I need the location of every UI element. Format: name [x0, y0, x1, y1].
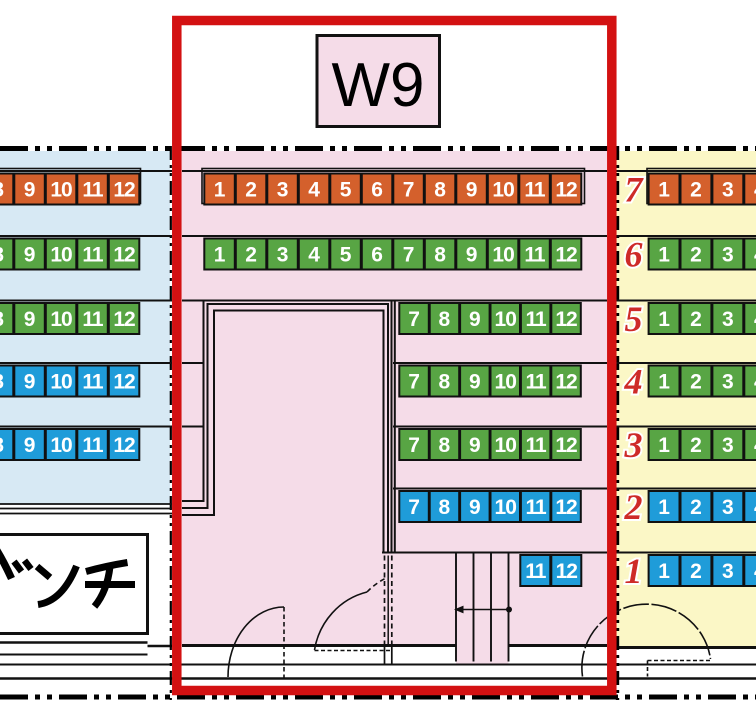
svg-text:12: 12 — [556, 560, 578, 583]
svg-text:11: 11 — [525, 371, 547, 394]
svg-text:11: 11 — [524, 244, 546, 267]
svg-text:12: 12 — [555, 244, 577, 267]
svg-text:6: 6 — [371, 244, 383, 267]
svg-text:8: 8 — [0, 308, 4, 331]
svg-text:3: 3 — [722, 371, 734, 394]
svg-text:12: 12 — [555, 371, 577, 394]
svg-text:12: 12 — [555, 179, 577, 202]
svg-text:1: 1 — [658, 434, 670, 457]
svg-text:1: 1 — [214, 179, 226, 202]
svg-text:3: 3 — [277, 179, 289, 202]
svg-text:7: 7 — [408, 496, 420, 519]
svg-text:11: 11 — [82, 434, 104, 457]
svg-text:8: 8 — [434, 179, 446, 202]
svg-text:10: 10 — [50, 179, 72, 202]
svg-text:3: 3 — [722, 244, 734, 267]
svg-text:10: 10 — [492, 179, 514, 202]
svg-text:10: 10 — [50, 308, 72, 331]
svg-text:2: 2 — [245, 179, 257, 202]
svg-text:9: 9 — [24, 371, 36, 394]
svg-text:11: 11 — [82, 244, 104, 267]
svg-text:3: 3 — [722, 434, 734, 457]
svg-text:2: 2 — [690, 434, 702, 457]
svg-text:1: 1 — [658, 560, 670, 583]
svg-text:11: 11 — [82, 179, 104, 202]
svg-text:2: 2 — [245, 244, 257, 267]
svg-text:10: 10 — [495, 434, 517, 457]
svg-text:9: 9 — [24, 244, 36, 267]
svg-text:8: 8 — [0, 179, 4, 202]
svg-text:7: 7 — [408, 371, 420, 394]
svg-text:6: 6 — [625, 235, 643, 275]
svg-text:9: 9 — [24, 434, 36, 457]
svg-text:10: 10 — [50, 434, 72, 457]
svg-text:5: 5 — [340, 179, 352, 202]
svg-text:9: 9 — [469, 308, 481, 331]
svg-text:9: 9 — [469, 496, 481, 519]
svg-text:5: 5 — [625, 299, 643, 339]
svg-text:8: 8 — [439, 371, 451, 394]
svg-text:4: 4 — [624, 362, 643, 402]
svg-text:10: 10 — [495, 308, 517, 331]
svg-text:1: 1 — [214, 244, 226, 267]
svg-text:9: 9 — [24, 308, 36, 331]
svg-text:1: 1 — [658, 371, 670, 394]
svg-text:11: 11 — [525, 560, 547, 583]
svg-text:11: 11 — [525, 496, 547, 519]
svg-text:9: 9 — [469, 371, 481, 394]
svg-text:8: 8 — [0, 434, 4, 457]
svg-text:11: 11 — [525, 308, 547, 331]
svg-text:8: 8 — [0, 371, 4, 394]
svg-text:12: 12 — [113, 308, 135, 331]
svg-text:9: 9 — [24, 179, 36, 202]
svg-text:10: 10 — [495, 496, 517, 519]
svg-text:9: 9 — [466, 179, 478, 202]
svg-text:12: 12 — [555, 308, 577, 331]
svg-text:2: 2 — [690, 308, 702, 331]
svg-text:2: 2 — [690, 371, 702, 394]
svg-text:2: 2 — [624, 487, 643, 527]
svg-text:2: 2 — [690, 560, 702, 583]
svg-text:8: 8 — [0, 244, 4, 267]
svg-text:2: 2 — [690, 179, 702, 202]
svg-text:12: 12 — [555, 496, 577, 519]
svg-text:3: 3 — [722, 560, 734, 583]
svg-text:11: 11 — [525, 434, 547, 457]
svg-text:1: 1 — [658, 179, 670, 202]
svg-text:11: 11 — [524, 179, 546, 202]
svg-text:5: 5 — [340, 244, 352, 267]
svg-text:3: 3 — [722, 308, 734, 331]
svg-text:3: 3 — [722, 496, 734, 519]
svg-text:12: 12 — [555, 434, 577, 457]
svg-text:8: 8 — [434, 244, 446, 267]
svg-text:10: 10 — [50, 244, 72, 267]
svg-text:7: 7 — [403, 244, 415, 267]
svg-text:2: 2 — [690, 244, 702, 267]
svg-text:12: 12 — [113, 244, 135, 267]
svg-text:6: 6 — [371, 179, 383, 202]
svg-text:3: 3 — [624, 425, 643, 465]
svg-text:3: 3 — [277, 244, 289, 267]
svg-text:7: 7 — [408, 434, 420, 457]
svg-text:4: 4 — [308, 179, 320, 202]
svg-text:7: 7 — [625, 170, 645, 210]
svg-text:11: 11 — [82, 371, 104, 394]
svg-text:1: 1 — [658, 244, 670, 267]
svg-text:10: 10 — [495, 371, 517, 394]
svg-text:W9: W9 — [332, 51, 425, 120]
svg-text:8: 8 — [439, 496, 451, 519]
svg-text:4: 4 — [308, 244, 320, 267]
svg-text:11: 11 — [82, 308, 104, 331]
svg-text:2: 2 — [690, 496, 702, 519]
svg-text:12: 12 — [113, 179, 135, 202]
svg-text:10: 10 — [492, 244, 514, 267]
svg-text:12: 12 — [113, 434, 135, 457]
svg-text:1: 1 — [625, 551, 643, 591]
svg-text:9: 9 — [466, 244, 478, 267]
svg-text:8: 8 — [439, 434, 451, 457]
svg-text:1: 1 — [658, 496, 670, 519]
svg-text:3: 3 — [722, 179, 734, 202]
svg-text:9: 9 — [469, 434, 481, 457]
svg-text:12: 12 — [113, 371, 135, 394]
svg-text:10: 10 — [50, 371, 72, 394]
svg-text:1: 1 — [658, 308, 670, 331]
svg-text:8: 8 — [439, 308, 451, 331]
svg-text:7: 7 — [408, 308, 420, 331]
svg-text:7: 7 — [403, 179, 415, 202]
